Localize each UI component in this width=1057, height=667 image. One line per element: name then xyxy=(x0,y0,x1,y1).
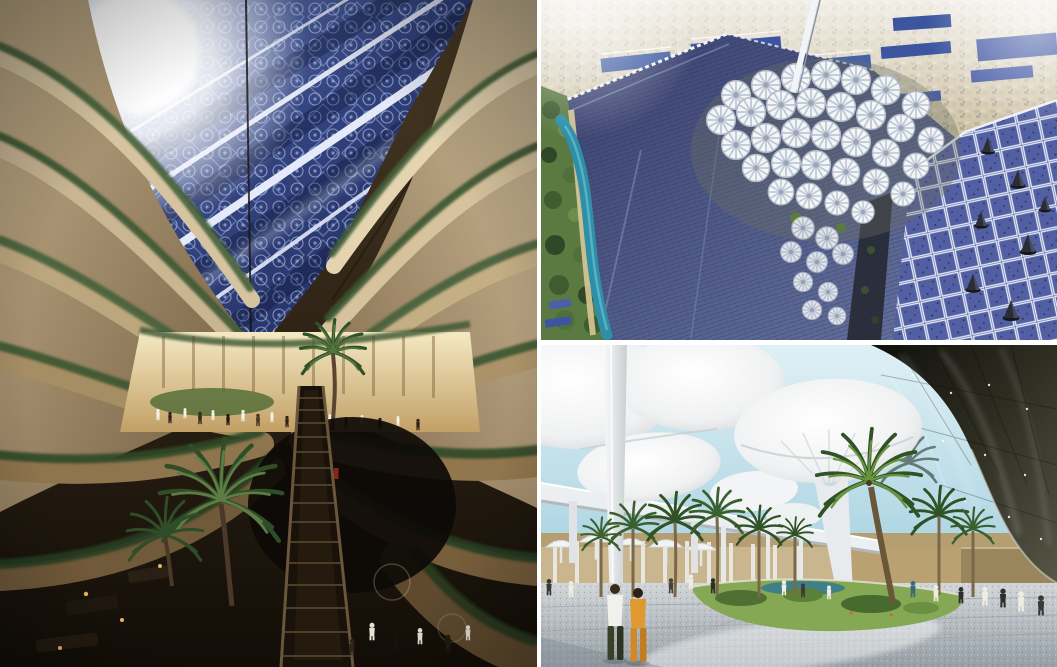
aerial-illustration xyxy=(541,0,1057,340)
panel-plaza-canopies xyxy=(541,345,1057,667)
divider-horizontal xyxy=(537,340,1057,345)
collage xyxy=(0,0,1057,667)
divider-vertical xyxy=(537,0,541,667)
vignette xyxy=(0,0,537,667)
plaza-illustration xyxy=(541,345,1057,667)
panel-aerial-solar-city xyxy=(541,0,1057,340)
panel-atrium-interior xyxy=(0,0,537,667)
atrium-illustration xyxy=(0,0,537,667)
